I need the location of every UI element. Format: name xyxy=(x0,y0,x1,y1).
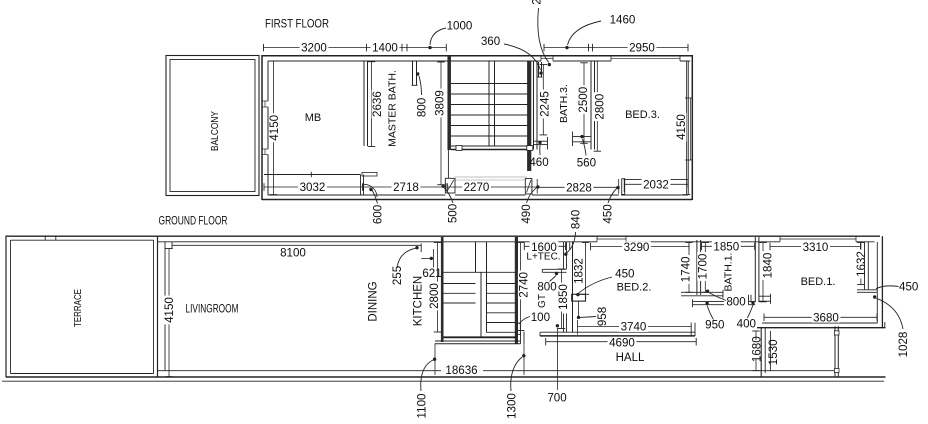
svg-text:958: 958 xyxy=(596,307,609,326)
svg-text:MASTER BATH.: MASTER BATH. xyxy=(387,70,399,147)
svg-text:GT: GT xyxy=(537,294,548,308)
svg-text:100: 100 xyxy=(531,311,550,324)
svg-text:TERRACE: TERRACE xyxy=(73,289,84,327)
svg-text:360: 360 xyxy=(481,35,500,48)
svg-text:450: 450 xyxy=(615,268,634,281)
svg-text:1680: 1680 xyxy=(750,336,763,362)
svg-text:2740: 2740 xyxy=(517,272,530,298)
svg-text:3032: 3032 xyxy=(300,181,326,194)
svg-text:DINING: DINING xyxy=(368,281,380,321)
svg-text:BED.1.: BED.1. xyxy=(801,276,836,288)
svg-text:1400: 1400 xyxy=(372,42,398,55)
svg-text:3310: 3310 xyxy=(803,241,829,254)
svg-text:FIRST FLOOR: FIRST FLOOR xyxy=(265,17,329,31)
svg-text:1850: 1850 xyxy=(713,240,739,253)
svg-text:3290: 3290 xyxy=(624,241,650,254)
svg-text:18636: 18636 xyxy=(445,364,477,377)
svg-text:450: 450 xyxy=(601,204,614,223)
svg-text:4150: 4150 xyxy=(675,114,688,140)
svg-text:8100: 8100 xyxy=(280,246,306,259)
svg-text:3740: 3740 xyxy=(621,321,647,334)
svg-text:BED.3.: BED.3. xyxy=(625,109,660,121)
svg-text:840: 840 xyxy=(569,210,582,229)
svg-text:2032: 2032 xyxy=(643,178,669,191)
svg-text:2270: 2270 xyxy=(464,181,490,194)
svg-text:490: 490 xyxy=(520,204,533,223)
svg-text:GROUND FLOOR: GROUND FLOOR xyxy=(159,214,228,228)
svg-text:LIVINGROOM: LIVINGROOM xyxy=(186,304,239,316)
svg-text:BATH.3.: BATH.3. xyxy=(558,84,570,123)
svg-text:800: 800 xyxy=(537,280,556,293)
svg-text:1530: 1530 xyxy=(767,339,780,365)
svg-text:1740: 1740 xyxy=(679,257,692,283)
svg-text:1028: 1028 xyxy=(897,332,910,358)
svg-text:1100: 1100 xyxy=(416,394,429,419)
svg-text:KITCHEN: KITCHEN xyxy=(413,276,425,326)
svg-text:HALL: HALL xyxy=(616,352,645,364)
svg-text:700: 700 xyxy=(547,392,566,405)
svg-text:2500: 2500 xyxy=(577,87,590,113)
svg-text:2245: 2245 xyxy=(539,91,552,117)
svg-text:460: 460 xyxy=(529,156,548,169)
svg-text:2828: 2828 xyxy=(566,181,592,194)
svg-text:L+TEC.: L+TEC. xyxy=(526,251,560,262)
svg-text:MB: MB xyxy=(305,112,322,124)
svg-text:2950: 2950 xyxy=(629,42,655,55)
svg-text:1300: 1300 xyxy=(506,393,519,419)
svg-text:3680: 3680 xyxy=(813,311,839,324)
svg-text:BATH.1.: BATH.1. xyxy=(723,253,735,292)
svg-text:1850: 1850 xyxy=(557,284,570,310)
svg-text:1700: 1700 xyxy=(697,254,710,280)
svg-text:1000: 1000 xyxy=(447,20,473,33)
svg-text:800: 800 xyxy=(416,98,429,117)
svg-text:950: 950 xyxy=(705,318,724,331)
svg-text:3809: 3809 xyxy=(434,90,447,116)
svg-text:621: 621 xyxy=(422,267,441,280)
svg-text:450: 450 xyxy=(899,280,918,293)
svg-text:1632: 1632 xyxy=(855,251,868,277)
svg-text:4690: 4690 xyxy=(609,336,635,349)
svg-text:2: 2 xyxy=(531,0,544,5)
svg-text:4150: 4150 xyxy=(163,297,176,323)
svg-text:4150: 4150 xyxy=(268,115,281,141)
svg-text:255: 255 xyxy=(391,266,404,285)
svg-text:1460: 1460 xyxy=(610,14,636,27)
svg-text:BED.2.: BED.2. xyxy=(617,281,652,293)
svg-text:1840: 1840 xyxy=(761,253,774,279)
svg-text:BALCONY: BALCONY xyxy=(210,111,221,151)
svg-text:2636: 2636 xyxy=(371,91,384,117)
svg-text:2718: 2718 xyxy=(393,181,419,194)
svg-text:560: 560 xyxy=(577,157,596,170)
svg-text:800: 800 xyxy=(726,296,745,309)
svg-text:1832: 1832 xyxy=(573,258,586,284)
svg-text:500: 500 xyxy=(447,204,460,223)
svg-text:400: 400 xyxy=(737,317,756,330)
svg-text:2800: 2800 xyxy=(428,283,441,309)
svg-text:2800: 2800 xyxy=(593,94,606,120)
svg-text:600: 600 xyxy=(372,205,385,224)
svg-text:3200: 3200 xyxy=(301,42,327,55)
